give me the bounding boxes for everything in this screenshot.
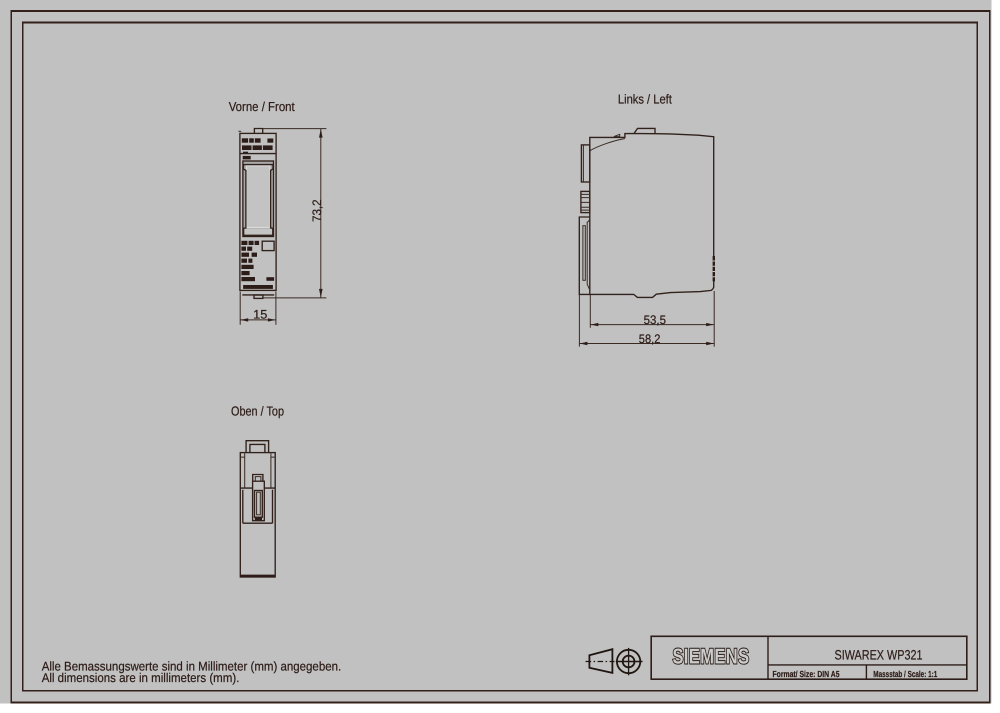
svg-text:Format/ Size: DIN A5: Format/ Size: DIN A5 (773, 669, 840, 679)
svg-text:15: 15 (253, 307, 267, 321)
svg-text:Links / Left: Links / Left (618, 91, 672, 106)
svg-text:Vorne / Front: Vorne / Front (229, 99, 295, 114)
svg-text:SIWAREX WP321: SIWAREX WP321 (835, 648, 923, 663)
svg-text:58,2: 58,2 (639, 332, 661, 346)
svg-text:All dimensions are in millimet: All dimensions are in millimeters (mm). (42, 671, 240, 685)
svg-text:SIEMENS: SIEMENS (673, 645, 750, 669)
svg-text:Massstab / Scale: 1:1: Massstab / Scale: 1:1 (873, 669, 937, 679)
svg-text:73,2: 73,2 (310, 199, 324, 222)
svg-text:Oben / Top: Oben / Top (231, 404, 284, 419)
svg-text:53,5: 53,5 (644, 313, 667, 327)
